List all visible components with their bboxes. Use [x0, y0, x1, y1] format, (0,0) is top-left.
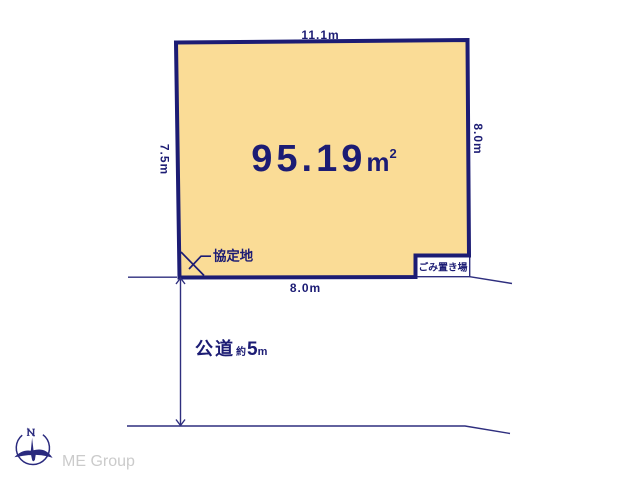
svg-text:11.1m: 11.1m — [301, 28, 339, 42]
svg-text:協定地: 協定地 — [213, 248, 254, 264]
svg-text:ME Group: ME Group — [62, 453, 135, 470]
svg-text:公道約5m: 公道約5m — [195, 338, 268, 360]
svg-text:8.0m: 8.0m — [471, 123, 485, 154]
svg-text:ごみ置き場: ごみ置き場 — [419, 261, 468, 274]
svg-text:8.0m: 8.0m — [290, 281, 321, 295]
svg-text:7.5m: 7.5m — [158, 144, 172, 175]
